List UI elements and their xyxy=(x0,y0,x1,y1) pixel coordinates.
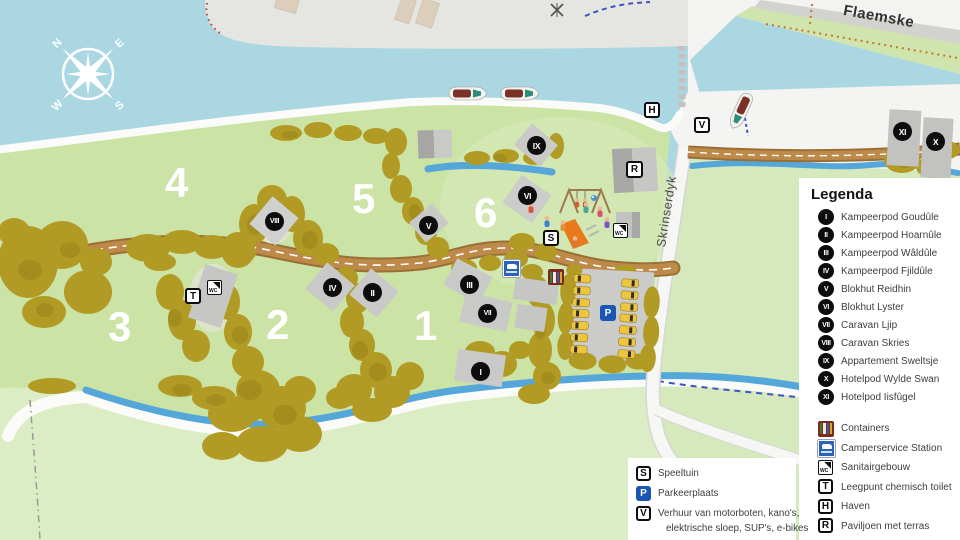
zone-label-3: 3 xyxy=(108,306,131,348)
map-marker-ix[interactable]: IX xyxy=(527,136,546,155)
legend-row: PParkeerplaats xyxy=(636,483,796,503)
legend-row: IVKampeerpod Fjildûle xyxy=(811,262,960,280)
zone-label-1: 1 xyxy=(414,305,437,347)
map-marker-viii[interactable]: VIII xyxy=(265,212,284,231)
map-marker-ii[interactable]: II xyxy=(363,283,382,302)
badge-ii: II xyxy=(818,227,834,243)
legend-row: IIKampeerpod Hoarnûle xyxy=(811,226,960,244)
legend-row: RPaviljoen met terras xyxy=(811,517,960,537)
container-bar xyxy=(550,272,552,283)
containers-icon xyxy=(818,421,834,437)
legend-row: VIICaravan Ljip xyxy=(811,316,960,334)
wc-label: WC xyxy=(209,288,217,294)
p-sign-icon: P xyxy=(636,486,651,501)
legend-row: SSpeeltuin xyxy=(636,463,796,483)
badge-ix: IX xyxy=(818,353,834,369)
legend-row: VIBlokhut Lyster xyxy=(811,298,960,316)
v-sign-icon: V xyxy=(636,506,651,521)
legend-label: Hotelpod Wylde Swan xyxy=(841,374,939,385)
campground-map: N E S W 4 5 6 3 2 1 Skrinserdyk Flaemske… xyxy=(0,0,960,540)
legend-label: Sanitairgebouw xyxy=(841,462,910,473)
camper-base xyxy=(506,271,517,273)
legend-label: Caravan Skries xyxy=(841,338,909,349)
map-sign-speeltuin[interactable]: S xyxy=(543,230,559,246)
legend-label: Verhuur van motorboten, kano's, xyxy=(658,508,799,519)
map-containers-icon[interactable] xyxy=(548,269,564,285)
legend-row: Containers xyxy=(811,419,960,439)
legend-row: XIHotelpod Iisfûgel xyxy=(811,388,960,406)
legend-panel: Legenda IKampeerpod Goudûle IIKampeerpod… xyxy=(799,178,960,540)
badge-x: X xyxy=(818,371,834,387)
legend-row: VBlokhut Reidhin xyxy=(811,280,960,298)
legend-label: Kampeerpod Goudûle xyxy=(841,212,939,223)
legend-label: Camperservice Station xyxy=(841,443,942,454)
map-sign-parkeerplaats[interactable]: P xyxy=(600,305,616,321)
badge-i: I xyxy=(818,209,834,225)
zone-label-5: 5 xyxy=(352,178,375,220)
camper-icon xyxy=(507,264,517,269)
legend-label: Blokhut Reidhin xyxy=(841,284,911,295)
container-bar xyxy=(553,272,555,283)
legend-row: Camperservice Station xyxy=(811,439,960,459)
container-bar xyxy=(557,272,559,283)
map-sign-verhuur[interactable]: V xyxy=(694,117,710,133)
legend-label: Haven xyxy=(841,501,870,512)
map-wc-icon[interactable]: WC xyxy=(207,280,222,295)
zone-label-2: 2 xyxy=(266,304,289,346)
badge-iv: IV xyxy=(818,263,834,279)
legend-row: VIIICaravan Skries xyxy=(811,334,960,352)
legend-row: IIIKampeerpod Wâldûle xyxy=(811,244,960,262)
t-sign-icon: T xyxy=(818,479,833,494)
map-marker-iv[interactable]: IV xyxy=(323,278,342,297)
map-marker-xi[interactable]: XI xyxy=(893,122,912,141)
boat-icon xyxy=(449,87,487,100)
legend-row: TLeegpunt chemisch toilet xyxy=(811,478,960,498)
h-sign-icon: H xyxy=(818,499,833,514)
s-sign-icon: S xyxy=(636,466,651,481)
legend-label: Leegpunt chemisch toilet xyxy=(841,482,952,493)
legend-row: WCSanitairgebouw xyxy=(811,458,960,478)
map-wc-icon[interactable]: WC xyxy=(613,223,628,238)
wc-icon: WC xyxy=(818,460,833,475)
legend-label: Speeltuin xyxy=(658,468,699,479)
legend-label: Blokhut Lyster xyxy=(841,302,904,313)
legend-label: Parkeerplaats xyxy=(658,488,718,499)
legend-label: Caravan Ljip xyxy=(841,320,897,331)
map-marker-v[interactable]: V xyxy=(419,216,438,235)
zone-label-6: 6 xyxy=(474,192,497,234)
legend-label-line2: elektrische sloep, SUP's, e-bikes xyxy=(666,523,796,540)
map-sign-haven[interactable]: H xyxy=(644,102,660,118)
legend-label: Paviljoen met terras xyxy=(841,521,929,532)
badge-vi: VI xyxy=(818,299,834,315)
legend-row: VVerhuur van motorboten, kano's, xyxy=(636,503,796,523)
legend-row: HHaven xyxy=(811,497,960,517)
map-camperservice-icon[interactable] xyxy=(503,260,520,277)
legend-row: IXAppartement Sweltsje xyxy=(811,352,960,370)
badge-iii: III xyxy=(818,245,834,261)
badge-vii: VII xyxy=(818,317,834,333)
map-sign-leegpunt[interactable]: T xyxy=(185,288,201,304)
zone-label-4: 4 xyxy=(165,162,188,204)
badge-xi: XI xyxy=(818,389,834,405)
map-marker-vii[interactable]: VII xyxy=(478,304,497,323)
boat-icon xyxy=(501,87,539,100)
legend-label: Hotelpod Iisfûgel xyxy=(841,392,916,403)
map-marker-iii[interactable]: III xyxy=(460,275,479,294)
legend-activities: SSpeeltuin PParkeerplaats VVerhuur van m… xyxy=(628,458,796,540)
badge-v: V xyxy=(818,281,834,297)
legend-facilities: Containers Camperservice Station WCSanit… xyxy=(811,419,960,536)
map-marker-i[interactable]: I xyxy=(471,362,490,381)
legend-row: IKampeerpod Goudûle xyxy=(811,208,960,226)
container-bar xyxy=(560,272,562,283)
legend-label: Kampeerpod Hoarnûle xyxy=(841,230,942,241)
wc-label: WC xyxy=(615,231,623,237)
legend-label: Kampeerpod Fjildûle xyxy=(841,266,933,277)
legend-row: XHotelpod Wylde Swan xyxy=(811,370,960,388)
legend-label: Containers xyxy=(841,423,889,434)
legend-label: Kampeerpod Wâldûle xyxy=(841,248,937,259)
badge-viii: VIII xyxy=(818,335,834,351)
r-sign-icon: R xyxy=(818,518,833,533)
map-sign-paviljoen[interactable]: R xyxy=(626,161,643,178)
map-marker-x[interactable]: X xyxy=(926,132,945,151)
camperservice-icon xyxy=(818,440,835,457)
legend-label: Appartement Sweltsje xyxy=(841,356,938,367)
map-marker-vi[interactable]: VI xyxy=(518,186,537,205)
legend-title: Legenda xyxy=(811,186,960,203)
